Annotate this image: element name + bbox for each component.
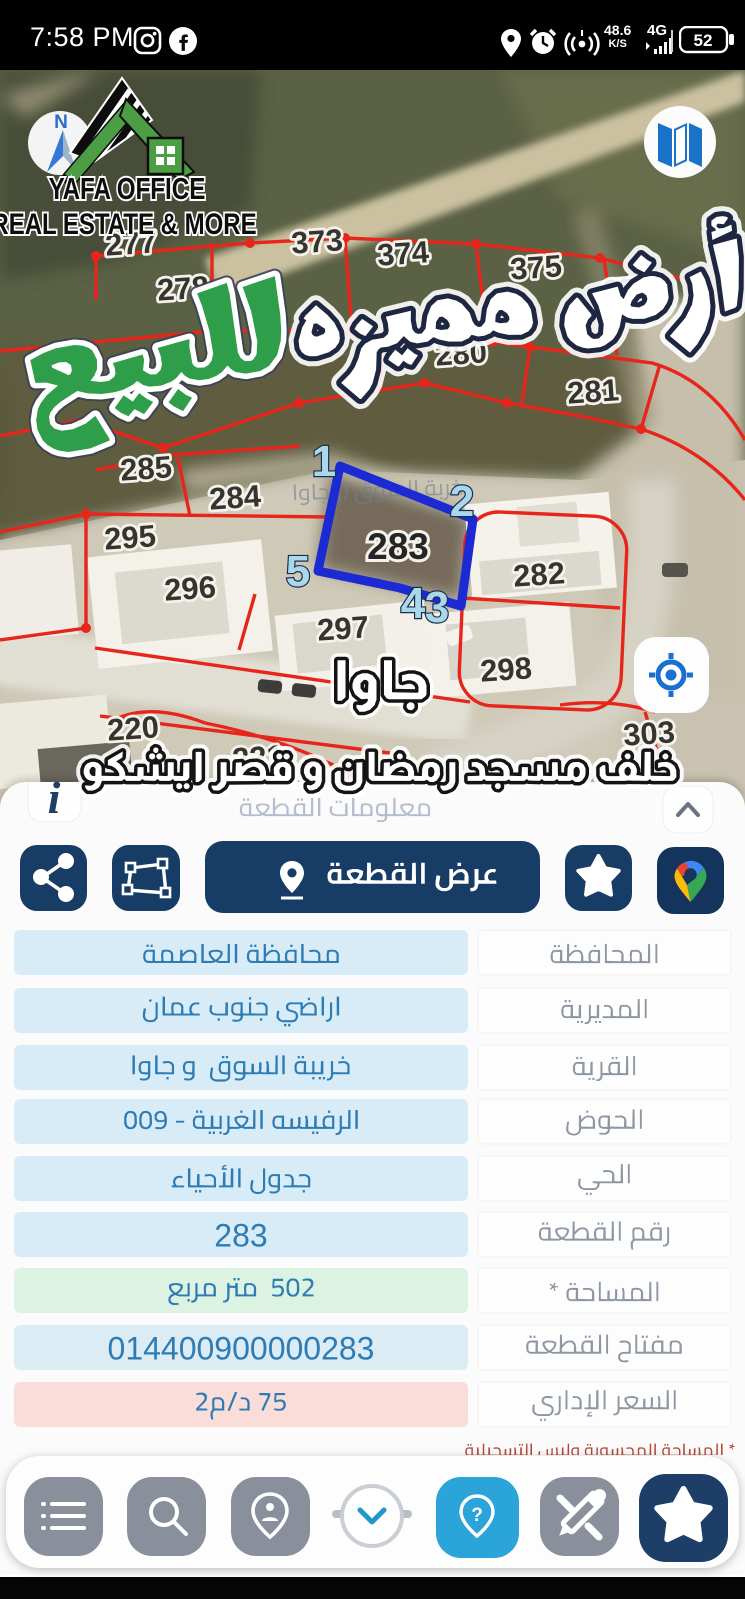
svg-text:?: ? (471, 1505, 483, 1526)
svg-text:3: 3 (425, 583, 449, 632)
svg-text:283: 283 (214, 1218, 267, 1254)
svg-text:296: 296 (163, 569, 217, 608)
svg-text:285: 285 (119, 449, 173, 488)
svg-text:375: 375 (509, 248, 563, 287)
svg-text:YAFA OFFICE: YAFA OFFICE (49, 171, 206, 206)
svg-text:374: 374 (376, 234, 431, 273)
svg-text:295: 295 (103, 518, 157, 557)
svg-text:REAL ESTATE & MORE: REAL ESTATE & MORE (0, 206, 257, 240)
svg-text:281: 281 (566, 372, 620, 411)
svg-text:284: 284 (208, 478, 263, 517)
svg-text:282: 282 (512, 555, 566, 594)
svg-text:N: N (54, 112, 68, 133)
svg-text:283: 283 (367, 526, 429, 567)
svg-text:014400900000283: 014400900000283 (108, 1331, 375, 1367)
svg-text:373: 373 (290, 222, 344, 261)
svg-text:5: 5 (286, 547, 310, 596)
svg-text:2: 2 (450, 477, 474, 526)
svg-text:1: 1 (312, 437, 336, 486)
svg-text:52: 52 (694, 31, 713, 50)
svg-text:4: 4 (401, 579, 426, 628)
svg-text:298: 298 (479, 650, 533, 689)
svg-text:297: 297 (316, 609, 370, 648)
